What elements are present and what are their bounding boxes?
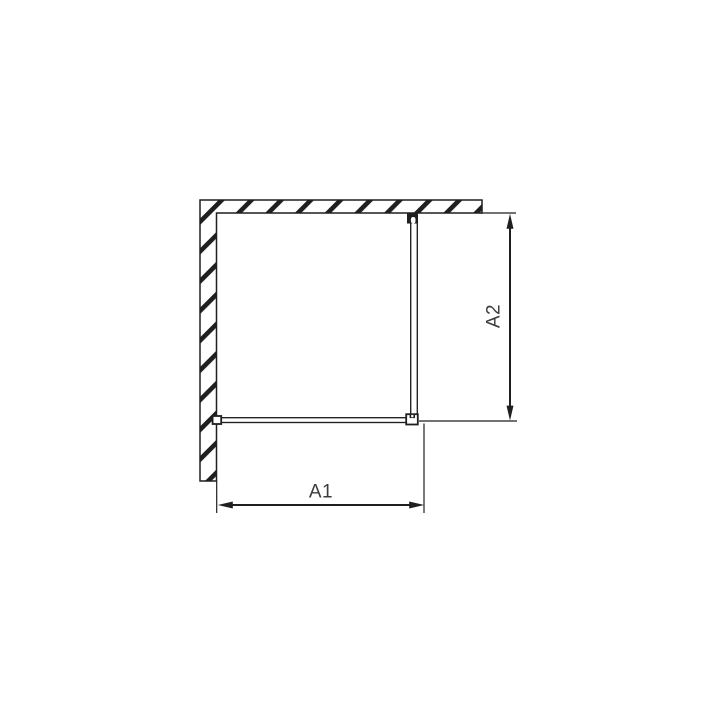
- arrow-right-icon: [409, 502, 424, 509]
- top-mount-bracket: [407, 213, 418, 224]
- dimension-label-a1: A1: [309, 482, 333, 503]
- shower-enclosure-diagram: A2 A1: [0, 0, 720, 720]
- hatched-wall-l-shape: [200, 200, 482, 481]
- corner-connector-bracket: [406, 414, 418, 425]
- wall-profile-bracket: [213, 416, 222, 424]
- glass-panel-horizontal: [221, 418, 408, 423]
- dimension-a1-horizontal: A1: [218, 482, 424, 509]
- dimension-label-a2: A2: [484, 304, 505, 328]
- technical-drawing-canvas: A2 A1: [0, 0, 720, 720]
- arrow-left-icon: [218, 502, 233, 509]
- arrow-up-icon: [507, 214, 514, 229]
- arrow-down-icon: [507, 406, 514, 421]
- glass-panel-vertical: [411, 214, 418, 421]
- dimension-a2-vertical: A2: [484, 214, 514, 421]
